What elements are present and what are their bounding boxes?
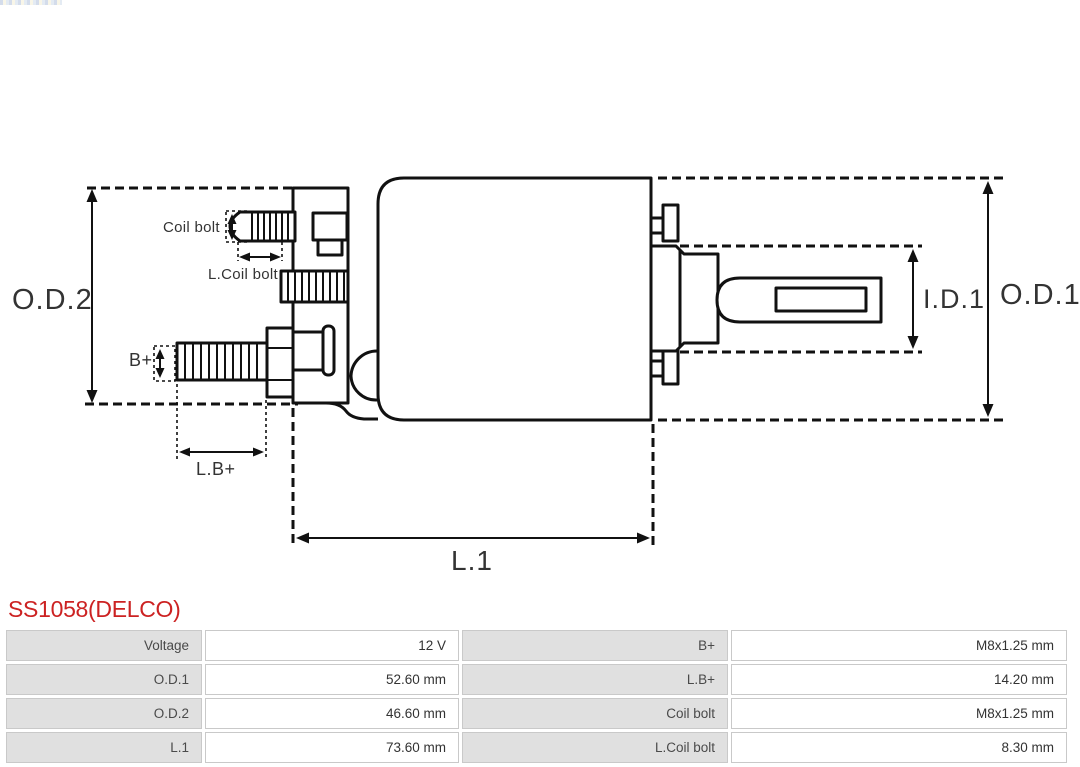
dim-label-id1: I.D.1: [923, 284, 985, 315]
spec-label: O.D.1: [6, 664, 202, 695]
extension-lines: [154, 211, 282, 459]
spec-value: M8x1.25 mm: [731, 698, 1067, 729]
dim-label-lb-plus: L.B+: [196, 459, 236, 480]
dim-label-coil-bolt: Coil bolt: [163, 219, 220, 236]
page: O.D.2 O.D.1 I.D.1 L.1 L.B+ B+ Coil bolt …: [0, 0, 1080, 767]
dim-label-l1: L.1: [451, 545, 493, 577]
dim-label-b-plus: B+: [129, 350, 153, 371]
coil-bolt-shape: [230, 212, 295, 241]
spec-value: 8.30 mm: [731, 732, 1067, 763]
part-outline: [177, 178, 881, 420]
spec-label: B+: [462, 630, 728, 661]
solenoid-drawing: [0, 0, 1080, 590]
spec-value: 73.60 mm: [205, 732, 459, 763]
dim-label-od1: O.D.1: [1000, 279, 1080, 312]
solenoid-body: [378, 178, 651, 420]
spec-value: 14.20 mm: [731, 664, 1067, 695]
part-number-title: SS1058(DELCO): [8, 596, 181, 623]
b-plus-stud: [177, 343, 267, 380]
spec-label: O.D.2: [6, 698, 202, 729]
b-plus-nut: [267, 328, 293, 397]
solenoid-diagram: O.D.2 O.D.1 I.D.1 L.1 L.B+ B+ Coil bolt …: [0, 0, 1080, 590]
spec-value: M8x1.25 mm: [731, 630, 1067, 661]
spec-value: 12 V: [205, 630, 459, 661]
spec-label: L.1: [6, 732, 202, 763]
spec-table: Voltage 12 V B+ M8x1.25 mm O.D.1 52.60 m…: [6, 630, 1067, 763]
plunger-slot: [776, 288, 866, 311]
dim-label-od2: O.D.2: [12, 284, 93, 317]
spec-value: 52.60 mm: [205, 664, 459, 695]
rear-flange: [651, 246, 718, 351]
spec-label: Coil bolt: [462, 698, 728, 729]
dim-label-l-coil-bolt: L.Coil bolt: [208, 266, 278, 283]
spec-value: 46.60 mm: [205, 698, 459, 729]
spec-label: L.Coil bolt: [462, 732, 728, 763]
spec-label: Voltage: [6, 630, 202, 661]
spec-label: L.B+: [462, 664, 728, 695]
